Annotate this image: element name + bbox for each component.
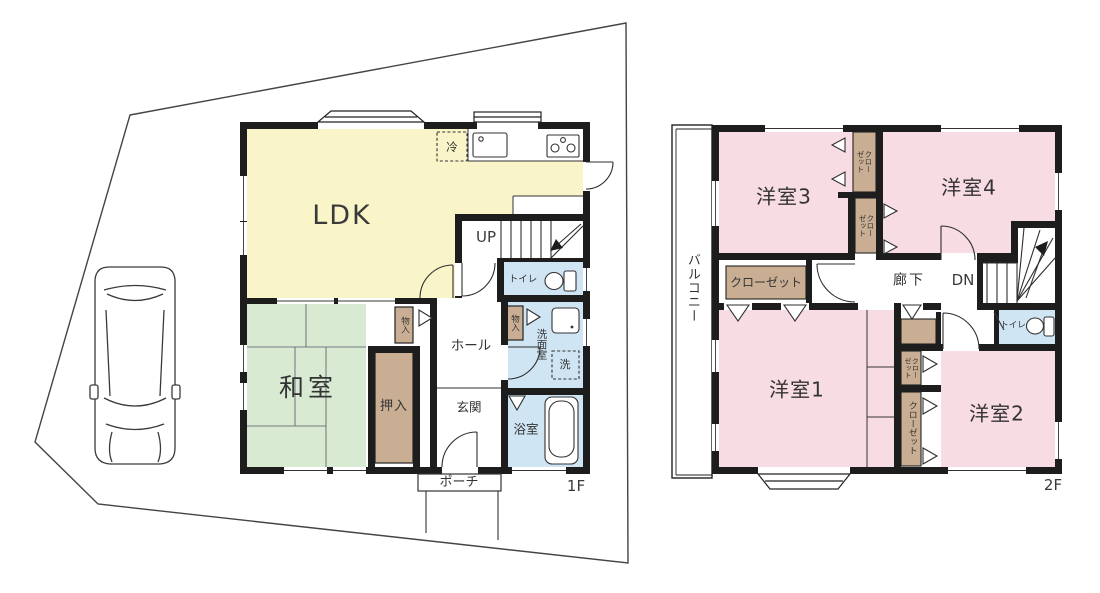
car-icon bbox=[90, 267, 180, 464]
room-label-hall: ホール bbox=[451, 339, 492, 353]
room-label-oshiire: 押入 bbox=[380, 400, 408, 414]
room-label-toilet-1f: トイレ bbox=[509, 275, 538, 285]
room-label-y3: 洋室3 bbox=[756, 187, 812, 208]
closet-label-y3-lower: クローゼット bbox=[858, 213, 874, 240]
room-label-porch: ポーチ bbox=[439, 476, 478, 490]
floor1-label: 1F bbox=[567, 479, 585, 495]
room-label-genkan: 玄関 bbox=[456, 400, 481, 413]
room-label-bath: 浴室 bbox=[513, 422, 538, 435]
closet-label-horizontal: クローゼット bbox=[730, 277, 802, 290]
floor1-plan bbox=[240, 111, 613, 540]
room-label-toilet-2f: トイレ bbox=[1000, 322, 1026, 331]
room-label-laundry: 洗 bbox=[560, 359, 571, 371]
room-label-ldk: LDK bbox=[312, 202, 372, 230]
toilet2-bowl-icon bbox=[1027, 318, 1044, 334]
closet-label-y2-large: クローゼット bbox=[906, 401, 915, 455]
room-label-fridge: 冷 bbox=[446, 141, 458, 153]
kitchen-sink-icon bbox=[473, 133, 507, 157]
room-label-y1: 洋室1 bbox=[769, 380, 825, 401]
room-label-y4: 洋室4 bbox=[941, 178, 997, 199]
room-label-balcony: バルコニー bbox=[685, 253, 699, 323]
toilet-tank-icon bbox=[564, 271, 576, 291]
floor-plan-graphic bbox=[0, 0, 1100, 593]
corridor-label: 廊下 bbox=[893, 274, 925, 289]
floor2-label: 2F bbox=[1044, 478, 1062, 494]
stairs-label-up: UP bbox=[476, 230, 496, 246]
washbasin-icon bbox=[552, 308, 579, 333]
closets-1f bbox=[375, 306, 523, 463]
closet-hall bbox=[901, 319, 936, 344]
room-label-washitsu: 和室 bbox=[279, 375, 337, 401]
room-label-y2: 洋室2 bbox=[969, 404, 1025, 425]
room-label-monoiri-right: 物入 bbox=[510, 315, 519, 332]
floor-plan-page: LDK 和室 押入 物入 物入 ホール 玄関 ポーチ トイレ 洗面室 洗 冷 浴… bbox=[0, 0, 1100, 593]
toilet-bowl-icon bbox=[545, 273, 563, 290]
toilet2-tank-icon bbox=[1044, 317, 1054, 336]
floor2-plan bbox=[672, 125, 1062, 489]
stairs-label-dn: DN bbox=[952, 273, 975, 289]
stairs-1f bbox=[501, 221, 583, 258]
room-label-monoiri-left: 物入 bbox=[400, 317, 409, 334]
room-label-senmen: 洗面室 bbox=[535, 328, 546, 360]
closet-label-y3-upper: クローゼット bbox=[856, 149, 872, 176]
closet-label-y2-small: クローゼット bbox=[904, 356, 919, 381]
